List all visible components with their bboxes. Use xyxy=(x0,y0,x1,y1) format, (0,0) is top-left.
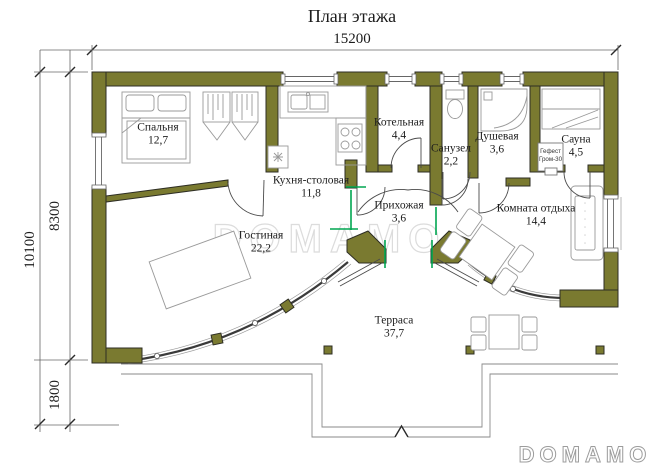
glazing-post-icon xyxy=(321,278,326,283)
brand-logo: DOMAMO xyxy=(519,442,652,467)
dim-left-house: 8300 xyxy=(49,201,62,231)
terrace-post xyxy=(596,346,604,354)
sauna-stove-label-1: Гефест xyxy=(540,148,561,155)
sauna-bench xyxy=(542,89,600,129)
floor-plan-drawing: DOMAMO xyxy=(0,0,665,470)
room-area: 3,6 xyxy=(490,143,504,155)
glazing-post-icon xyxy=(252,320,257,325)
room-area: 14,4 xyxy=(526,215,546,227)
room-label-sauna: Сауна 4,5 xyxy=(561,134,590,159)
facade-column xyxy=(211,333,223,345)
room-name: Котельная xyxy=(374,117,424,129)
dim-left-total: 10100 xyxy=(24,231,37,269)
room-label-bedroom: Спальня 12,7 xyxy=(137,122,178,147)
room-name: Гостиная xyxy=(239,230,284,242)
terrace-post xyxy=(324,346,332,354)
room-label-boiler: Котельная 4,4 xyxy=(374,117,424,142)
wardrobe xyxy=(203,92,258,140)
room-area: 37,7 xyxy=(384,327,404,339)
room-name: Сауна xyxy=(561,134,590,146)
terrace-dining-set xyxy=(471,315,537,350)
room-name: Санузел xyxy=(431,143,471,155)
sauna-stove-label-2: Гром-30 xyxy=(539,156,563,163)
glazing-post-icon xyxy=(154,353,159,358)
room-name: Кухня-столовая xyxy=(273,175,349,187)
facade-column xyxy=(280,299,294,313)
dim-left-terrace: 1800 xyxy=(49,380,62,410)
room-name: Спальня xyxy=(137,122,178,134)
room-name: Терраса xyxy=(375,315,414,327)
room-area: 3,6 xyxy=(392,212,406,224)
room-name: Прихожая xyxy=(374,200,423,212)
entrance-mark-icon xyxy=(395,426,408,437)
sofa xyxy=(571,186,603,260)
room-label-rest: Комната отдыха 14,4 xyxy=(497,203,576,228)
room-area: 11,8 xyxy=(301,187,321,199)
room-label-shower: Душевая 3,6 xyxy=(475,131,518,156)
room-label-kitchen: Кухня-столовая 11,8 xyxy=(273,175,349,200)
snowflake-icon xyxy=(273,152,283,162)
room-area: 12,7 xyxy=(148,134,168,146)
bedroom-diagonal-wall xyxy=(106,180,228,202)
floor-plan: DOMAMO xyxy=(0,0,665,470)
room-label-wc: Санузел 2,2 xyxy=(431,143,471,168)
room-area: 22,2 xyxy=(251,242,271,254)
room-label-terrace: Терраса 37,7 xyxy=(375,315,414,340)
room-name: Душевая xyxy=(475,131,518,143)
toilet xyxy=(446,90,464,119)
room-label-living: Гостиная 22,2 xyxy=(239,230,284,255)
sauna-stove: Гефест Гром-30 xyxy=(538,143,563,175)
room-area: 4,5 xyxy=(569,146,583,158)
terrace-outline xyxy=(121,364,618,437)
page-title: План этажа xyxy=(308,10,396,23)
room-name: Комната отдыха xyxy=(497,203,576,215)
room-area: 2,2 xyxy=(444,155,458,167)
shower-cabin xyxy=(481,89,527,131)
room-label-hallway: Прихожая 3,6 xyxy=(374,200,423,225)
room-area: 4,4 xyxy=(392,129,406,141)
kitchen-unit xyxy=(268,86,366,168)
living-table xyxy=(149,231,251,309)
dim-top-width: 15200 xyxy=(333,33,371,46)
